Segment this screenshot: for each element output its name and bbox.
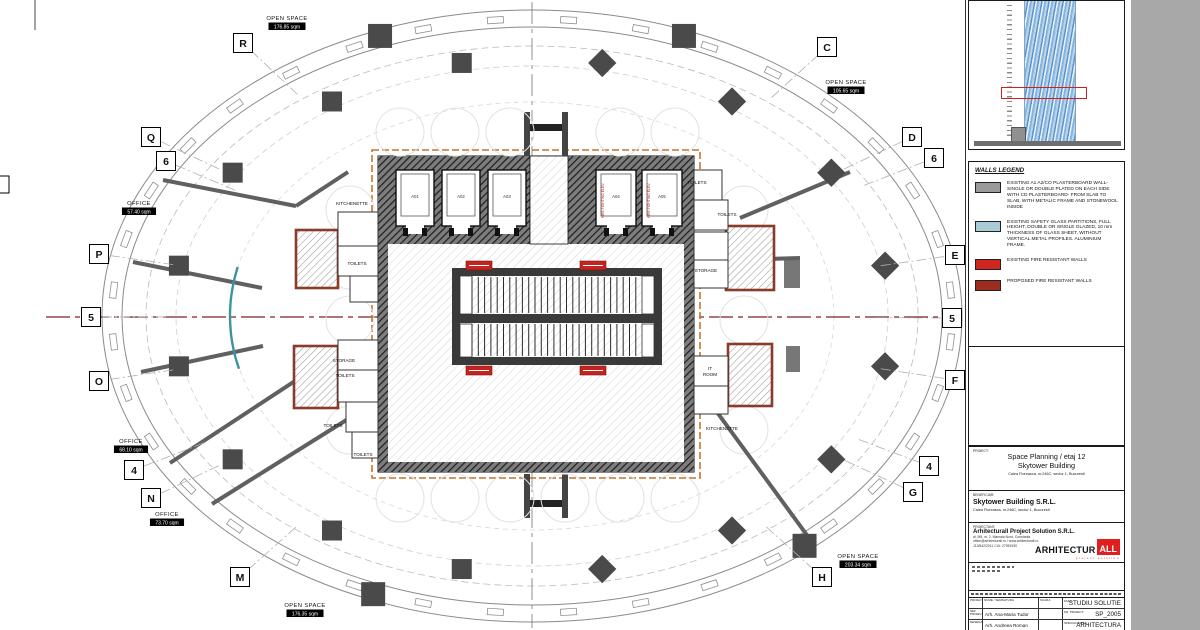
elevator-door-opening — [498, 222, 516, 234]
project-number-cell: NR. PROIECT: SP_2005 — [1063, 609, 1124, 620]
column — [718, 87, 746, 115]
legend-text: EXISTING FIRE RESISTANT WALLS — [1007, 258, 1118, 270]
project-address: Calea Floreasca, nr.246C, sector 1, Bucu… — [973, 472, 1120, 476]
facade-panel — [227, 519, 244, 533]
ceiling-arc — [720, 296, 768, 344]
facade-column — [368, 24, 392, 48]
service-room — [694, 170, 722, 200]
floor-plan: A01A02A03A04FIRE FIGHTING ELEV.A05FIRE F… — [0, 0, 965, 630]
row2-signature-cell — [1039, 609, 1063, 620]
project-number-label: NR. PROIECT: — [1064, 610, 1084, 614]
micro-text-bar — [972, 566, 1014, 568]
column — [871, 352, 899, 380]
facade-panel — [946, 334, 954, 351]
floor-number-ticks — [1007, 5, 1012, 139]
facade-panel — [868, 479, 884, 495]
grid-bubble-label: P — [95, 249, 102, 261]
room-area-value: 176.35 sqm — [292, 611, 318, 617]
facade-panel — [415, 24, 432, 33]
walls-legend-title: WALLS LEGEND — [975, 167, 1118, 174]
row3-role: DESENAT — [969, 620, 983, 630]
room-name-label: OPEN SPACE — [837, 554, 878, 560]
facade-panel — [109, 334, 117, 351]
service-room — [338, 340, 378, 370]
column — [588, 555, 616, 583]
column — [223, 163, 243, 183]
facade-panel — [346, 580, 363, 591]
door-jamb — [623, 228, 628, 236]
facade-panel — [109, 282, 117, 299]
grid-bubble-label: H — [818, 572, 826, 584]
service-room — [694, 260, 728, 288]
small-room-label: STORAGE — [695, 268, 717, 273]
core-corridor — [530, 156, 568, 244]
building-elevation-thumbnail — [968, 0, 1125, 150]
column-stub — [784, 258, 800, 288]
drawing-viewer: { "desktop": {"bg": "#a8a8a8", "paper": … — [0, 0, 1200, 630]
facade-panel — [560, 608, 576, 615]
room-area-value: 176.85 sqm — [274, 24, 300, 30]
storage-room — [728, 344, 772, 406]
micro-text-line — [971, 593, 1122, 595]
facade-panel — [764, 553, 781, 566]
ceiling-arc — [431, 474, 479, 522]
door-jamb — [495, 228, 500, 236]
grid-bubble-label: C — [823, 42, 831, 54]
designer-section: PROIECTANT: Arhitecturall Project Soluti… — [968, 522, 1125, 563]
facade-panel — [632, 598, 649, 607]
facade-panel — [144, 182, 158, 199]
room-name-label: OPEN SPACE — [266, 16, 307, 22]
table-col1-header: PROIECTANT — [969, 598, 983, 609]
row2-role: SEF PROIECT — [969, 609, 983, 620]
room-name-label: OPEN SPACE — [825, 80, 866, 86]
logo-subtitle: project solution — [1035, 556, 1120, 560]
column — [169, 256, 189, 276]
grid-bubble-label: D — [908, 132, 916, 144]
small-room-label: ROOM — [703, 372, 717, 377]
facade-panel — [180, 138, 196, 154]
logo-text-black: ARHITECTUR — [1035, 545, 1096, 555]
room-area-value: 203.34 sqm — [845, 562, 871, 568]
elevator-label: A03 — [503, 194, 511, 199]
column — [169, 356, 189, 376]
door-jamb — [449, 228, 454, 236]
grid-bubble-label: G — [909, 487, 917, 499]
client-name: Skytower Building S.R.L. — [973, 499, 1120, 506]
walls-legend: WALLS LEGEND EXISTING A1 A2/CO PLASTERBO… — [968, 161, 1125, 347]
column — [588, 49, 616, 77]
facade-panel — [946, 282, 954, 299]
grid-bubble-label: N — [147, 493, 155, 505]
facade-panel — [180, 479, 196, 495]
notes-box — [968, 346, 1125, 446]
micro-text-bar — [972, 570, 1002, 572]
titleblock-column: WALLS LEGEND EXISTING A1 A2/CO PLASTERBO… — [965, 0, 1131, 630]
ceiling-arc — [651, 108, 699, 156]
facade-panel — [821, 99, 838, 113]
ceiling-arc — [596, 108, 644, 156]
column — [223, 449, 243, 469]
partition-wall — [133, 262, 262, 288]
door-jamb — [468, 228, 473, 236]
small-room-label: TOILETS — [717, 212, 736, 217]
column — [718, 516, 746, 544]
grid-bubble-label: E — [951, 250, 958, 262]
elevator-label: A04 — [612, 194, 620, 199]
facade-panel — [932, 384, 944, 401]
column — [871, 252, 899, 280]
partition-wall — [141, 346, 263, 372]
facade-panel — [487, 16, 503, 23]
client-address: Calea Floreasca, nr.246C, sector 1, Bucu… — [973, 508, 1120, 512]
elevator-door-opening — [452, 222, 470, 234]
small-room-label: KITCHENETTE — [336, 201, 368, 206]
room-area-value: 105.65 sqm — [833, 88, 859, 94]
service-room — [350, 276, 378, 302]
phase-value: STUDIU SOLUTIE — [1069, 600, 1121, 607]
grid-leader — [861, 162, 923, 187]
service-room — [346, 402, 378, 432]
current-floor-marker — [1001, 87, 1087, 99]
grid-bubble-label: 5 — [949, 313, 955, 325]
grid-bubble-label: O — [95, 376, 103, 388]
tower-elevation-image — [1024, 1, 1076, 144]
fire-elevator-text: FIRE FIGHTING ELEV. — [601, 183, 605, 218]
small-room-label: TOILETS — [347, 261, 366, 266]
facade-panel — [283, 553, 300, 566]
door-jamb — [604, 228, 609, 236]
row2-name: Arh. Ana-Maria Tudor — [983, 609, 1039, 620]
elevator-label: A02 — [457, 194, 465, 199]
project-section: PROIECT: Space Planning / etaj 12 Skytow… — [968, 446, 1125, 491]
small-room-label: IT — [708, 366, 712, 371]
grid-bubble-label: 6 — [931, 153, 937, 165]
room-name-label: OFFICE — [119, 439, 143, 445]
service-room — [694, 356, 728, 386]
room-area-value: 68.10 sqm — [119, 447, 142, 453]
arhitecturall-logo: ARHITECTURALL project solution — [1035, 539, 1120, 560]
revision-section — [968, 562, 1125, 591]
client-label: BENEFICIAR: — [973, 493, 1120, 497]
room-area-value: 73.70 sqm — [155, 520, 178, 526]
facade-panel — [701, 41, 718, 52]
legend-swatch-plasterboard — [975, 182, 1001, 193]
facade-panel — [120, 384, 132, 401]
legend-text: EXISTING A1 A2/CO PLASTERBOARD WALL- SIN… — [1007, 181, 1118, 211]
door-jamb — [669, 228, 674, 236]
facade-panel — [906, 182, 920, 199]
small-room-label: TOILETS — [687, 180, 706, 185]
client-section: BENEFICIAR: Skytower Building S.R.L. Cal… — [968, 490, 1125, 523]
elevator-door-opening — [653, 222, 671, 234]
small-room-label: TOILETS — [335, 373, 354, 378]
specialty-value: ARHITECTURA — [1076, 622, 1121, 629]
small-room-label: KITCHENETTE — [706, 426, 738, 431]
elevator-door-opening — [607, 222, 625, 234]
small-room-label: TOILETS — [323, 423, 342, 428]
elevator-label: A01 — [411, 194, 419, 199]
elevator-door-opening — [406, 222, 424, 234]
storage-room — [296, 230, 338, 288]
storage-room — [726, 226, 774, 290]
ground-line — [974, 141, 1121, 146]
column — [452, 53, 472, 73]
storage-room — [294, 346, 338, 408]
grid-bubble-label: Q — [147, 132, 155, 144]
grid-leader — [842, 459, 903, 487]
door-jamb — [650, 228, 655, 236]
small-room-label: TOILETS — [353, 452, 372, 457]
grid-bubble-label: M — [236, 572, 245, 584]
facade-panel — [560, 16, 576, 23]
room-name-label: OFFICE — [127, 201, 151, 207]
service-room — [694, 386, 728, 414]
facade-panel — [227, 99, 244, 113]
legend-text: EXISTING SAFETY GLASS PARTITIONS, FULL H… — [1007, 220, 1118, 250]
grid-bubble-label: F — [952, 375, 959, 387]
logo-text-red: ALL — [1097, 539, 1121, 555]
legend-swatch-fire-existing — [975, 259, 1001, 270]
building-core — [372, 112, 800, 518]
grid-bubble-label: 4 — [926, 461, 932, 473]
row3-name: Arh. Andreea Roman — [983, 620, 1039, 630]
facade-panel — [346, 41, 363, 52]
small-room-label: STORAGE — [333, 358, 355, 363]
facade-panel — [821, 519, 838, 533]
scale-label: SCARA: — [1039, 598, 1063, 609]
facade-panel — [701, 580, 718, 591]
door-jamb — [422, 228, 427, 236]
grid-bubble-label: R — [239, 38, 247, 50]
grid-bubble-partial — [0, 176, 9, 193]
legend-swatch-glass — [975, 221, 1001, 232]
legend-swatch-fire-proposed — [975, 280, 1001, 291]
elevator-label: A05 — [658, 194, 666, 199]
partition-wall — [703, 393, 812, 542]
row3-signature-cell — [1039, 620, 1063, 630]
room-area-value: 57.40 sqm — [127, 209, 150, 215]
door-jamb — [514, 228, 519, 236]
facade-panel — [632, 24, 649, 33]
legend-item: EXISTING FIRE RESISTANT WALLS — [975, 258, 1118, 270]
ceiling-arc — [596, 474, 644, 522]
facade-panel — [283, 66, 300, 79]
specialty-cell: SPECIALITATEA: ARHITECTURA — [1063, 620, 1124, 630]
room-name-label: OFFICE — [155, 512, 179, 518]
service-room — [694, 232, 728, 260]
column — [817, 445, 845, 473]
fire-elevator-text: FIRE FIGHTING ELEV. — [647, 183, 651, 218]
grid-bubble-label: 5 — [88, 312, 94, 324]
phase-cell: FAZA: STUDIU SOLUTIE — [1063, 598, 1124, 609]
legend-item: EXISTING A1 A2/CO PLASTERBOARD WALL- SIN… — [975, 181, 1118, 211]
facade-panel — [415, 598, 432, 607]
ceiling-arc — [326, 296, 374, 344]
grid-bubble-label: 6 — [163, 156, 169, 168]
facade-panel — [121, 230, 133, 247]
titleblock-table: PROIECTANT NUME / SEMNATURA SCARA: FAZA:… — [968, 597, 1125, 630]
project-title-line2: Skytower Building — [973, 462, 1120, 471]
legend-item: PROPOSED FIRE RESISTANT WALLS — [975, 279, 1118, 291]
column-stub — [786, 346, 800, 372]
facade-panel — [487, 608, 503, 615]
project-number-value: SP_2005 — [1095, 611, 1121, 618]
ceiling-arc — [431, 108, 479, 156]
facade-panel — [764, 66, 781, 79]
facade-panel — [932, 230, 944, 247]
legend-item: EXISTING SAFETY GLASS PARTITIONS, FULL H… — [975, 220, 1118, 250]
column — [322, 521, 342, 541]
room-name-label: OPEN SPACE — [284, 603, 325, 609]
facade-column — [361, 582, 385, 606]
facade-panel — [905, 433, 919, 450]
grid-bubble-label: 4 — [131, 465, 137, 477]
table-col2-header: NUME / SEMNATURA — [983, 598, 1039, 609]
ceiling-arc — [376, 108, 424, 156]
ceiling-arc — [376, 474, 424, 522]
column — [322, 91, 342, 111]
door-jamb — [403, 228, 408, 236]
column — [452, 559, 472, 579]
service-room — [338, 212, 378, 246]
legend-text: PROPOSED FIRE RESISTANT WALLS — [1007, 279, 1118, 291]
facade-column — [672, 24, 696, 48]
